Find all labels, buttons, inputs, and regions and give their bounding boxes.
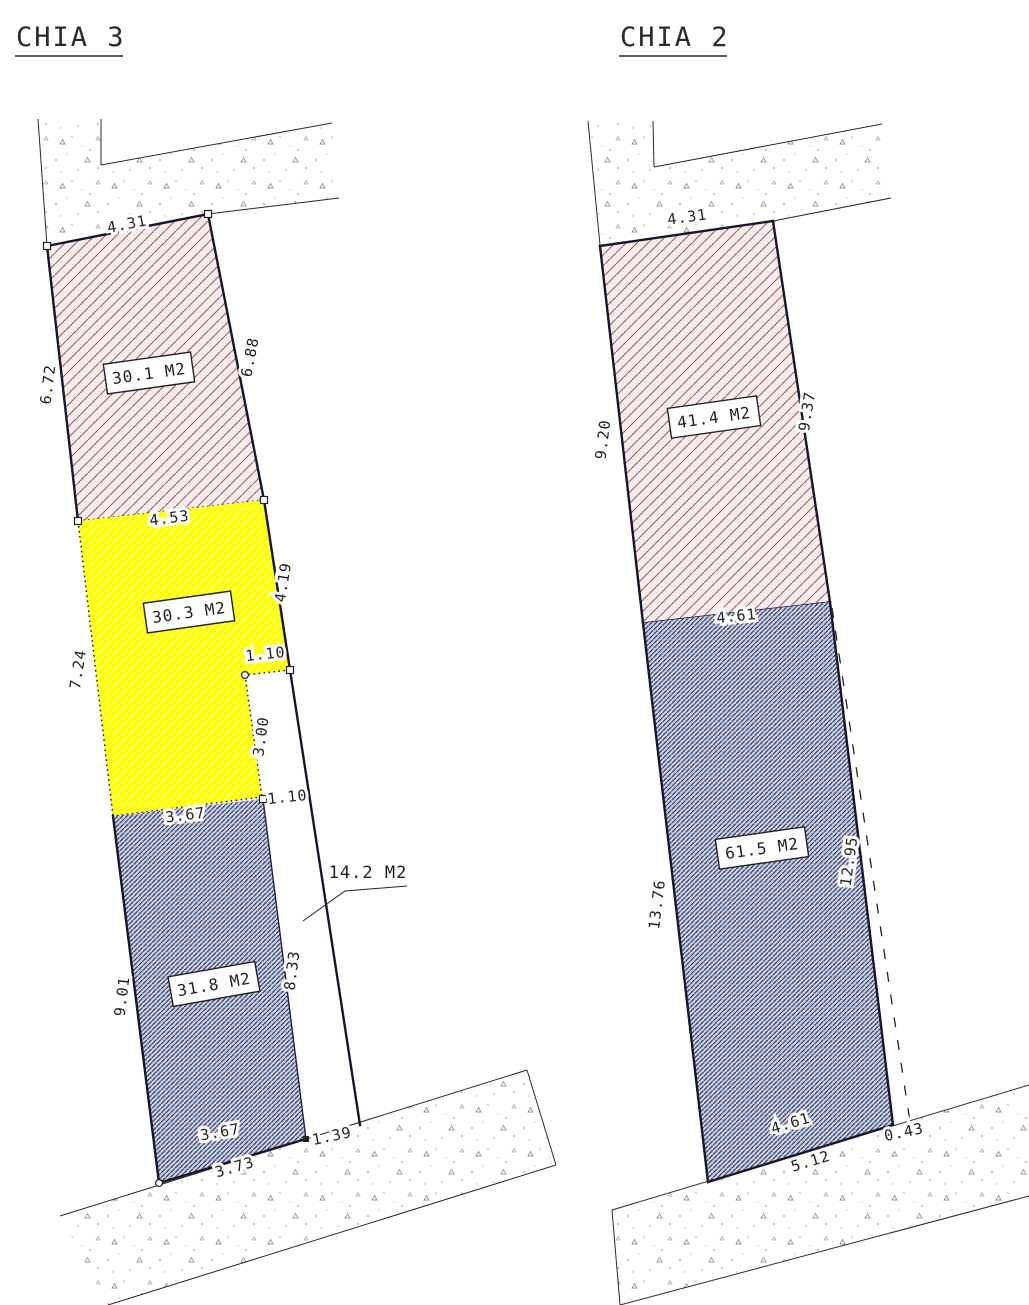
leader-line [303, 886, 407, 921]
corner-marker [260, 796, 267, 803]
dim-label: 3.00 [249, 715, 272, 757]
dim-label: 9.01 [111, 975, 134, 1017]
dim-label: 9.20 [592, 418, 615, 460]
dim-label: 6.88 [237, 336, 262, 379]
area-label-strip: 14.2 M2 [329, 863, 408, 883]
dim-label: 7.24 [66, 648, 90, 690]
corner-marker [205, 211, 212, 218]
corner-marker [75, 518, 82, 525]
boundary [290, 670, 360, 1125]
plot-title-chia3: CHIA 3 [16, 22, 126, 53]
dim-label: 6.72 [37, 363, 60, 405]
site-plan-svg: CHIA 3 [0, 0, 1029, 1305]
dim-label: 8.33 [281, 949, 304, 991]
chia-2-plot: CHIA 2 4.31 9.20 9.37 4.61 13.76 12.95 [588, 22, 1029, 1305]
corner-marker [242, 672, 249, 679]
corner-marker [287, 667, 294, 674]
sidewalk-band-bottom-left [60, 1070, 556, 1305]
parcel-lower-blue [643, 602, 893, 1182]
dim-label: 1.10 [267, 786, 309, 808]
plot-title-chia2: CHIA 2 [620, 22, 730, 53]
corner-marker [156, 1180, 163, 1187]
dim-label: 13.76 [645, 878, 669, 930]
corner-marker [261, 497, 268, 504]
survey-drawing-page: CHIA 3 [0, 0, 1029, 1305]
chia-3-plot: CHIA 3 [15, 22, 556, 1305]
corner-marker [44, 243, 51, 250]
corner-marker [303, 1136, 309, 1142]
